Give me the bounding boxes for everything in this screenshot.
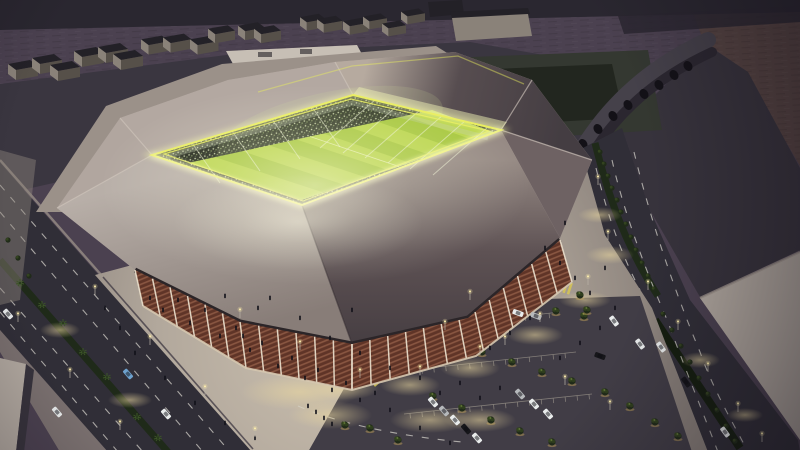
fx-layer bbox=[0, 0, 800, 450]
vignette bbox=[0, 0, 800, 450]
scene-canvas: Aerial night rendering of an illuminated… bbox=[0, 0, 800, 450]
stadium-aerial-rendering: Aerial night rendering of an illuminated… bbox=[0, 0, 800, 450]
